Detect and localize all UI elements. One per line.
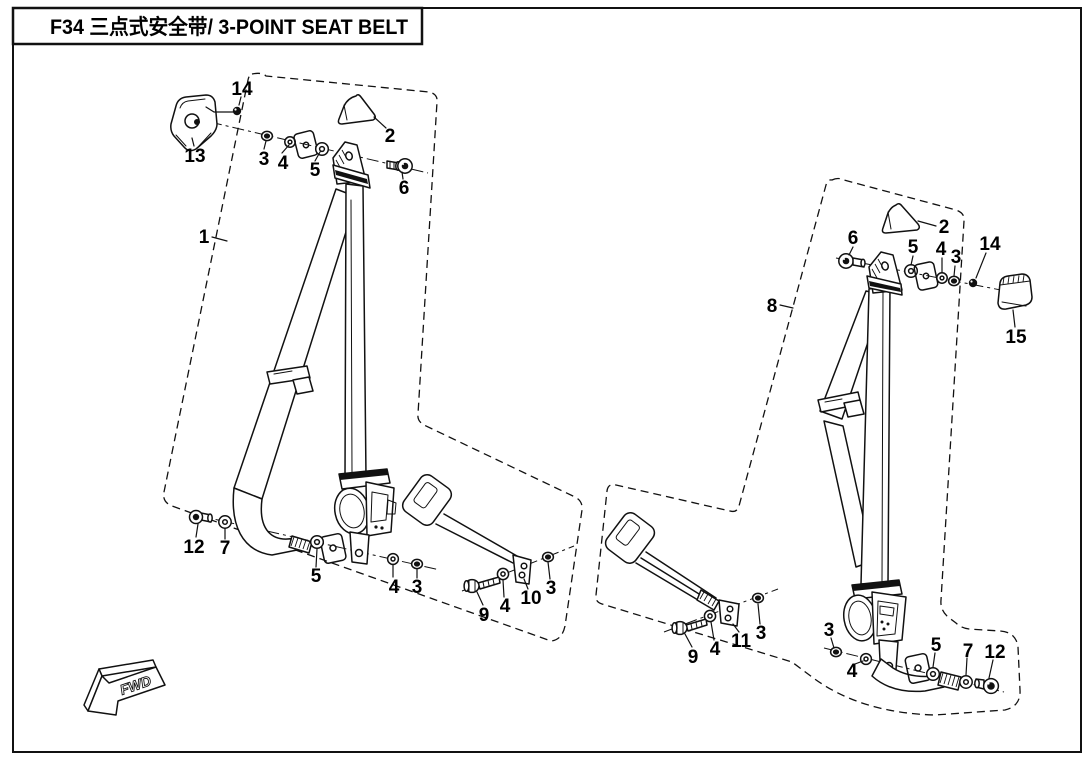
nut-3-right-lower: [831, 647, 842, 656]
callout-5-left-lower: 5: [311, 566, 322, 587]
washer-5-left-top: [316, 143, 329, 156]
callout-14-left: 14: [231, 79, 253, 100]
callout-6-right: 6: [848, 228, 859, 249]
callout-5-right-lower: 5: [931, 635, 942, 656]
callout-14-right: 14: [979, 234, 1001, 255]
callout-4-right-top: 4: [936, 239, 947, 260]
buckle-11-right: [602, 510, 739, 626]
callout-7-left: 7: [220, 538, 231, 559]
callout-5-left-top: 5: [310, 160, 321, 181]
nut-3-left-top: [262, 131, 273, 140]
ball-stud-14-right: [969, 279, 977, 287]
page-title: F34 三点式安全带/ 3-POINT SEAT BELT: [50, 15, 408, 39]
callout-12-right: 12: [984, 642, 1005, 663]
callout-3-left-buckle: 3: [546, 578, 557, 599]
callout-3-left-top: 3: [259, 149, 270, 170]
callout-3-right-lower: 3: [824, 620, 835, 641]
callout-1: 1: [199, 227, 210, 248]
washer-4-right-buckle: [704, 610, 715, 621]
callout-4-right-lower: 4: [847, 661, 858, 682]
callout-10: 10: [520, 588, 541, 609]
callout-4-left-top: 4: [278, 153, 289, 174]
left-seat-belt-assembly: [171, 95, 554, 593]
title-block: F34 三点式安全带/ 3-POINT SEAT BELT: [13, 8, 422, 44]
right-seat-belt-assembly: [602, 204, 1032, 694]
washer-5-left-lower: [311, 536, 324, 549]
callout-8: 8: [767, 296, 778, 317]
bolt-9-right: [672, 619, 707, 634]
washer-4-right-top: [937, 273, 947, 283]
callout-6-left: 6: [399, 178, 410, 199]
left-retractor: [331, 469, 396, 564]
nut-3-left-lower: [412, 559, 423, 568]
cover-13: [171, 95, 217, 151]
callout-2-right: 2: [939, 217, 950, 238]
nut-3-left-buckle: [543, 552, 554, 561]
bolt-12-left: [190, 511, 213, 524]
callout-11: 11: [731, 631, 752, 652]
left-vertical-strap: [345, 184, 366, 477]
callout-15: 15: [1005, 327, 1027, 348]
bolt-9-left: [464, 577, 500, 592]
right-upper-anchor-bracket: [867, 252, 902, 295]
washer-4-left-lower: [388, 554, 399, 565]
bolt-6-left: [387, 159, 412, 173]
callout-13: 13: [184, 146, 205, 167]
callout-9-right: 9: [688, 647, 699, 668]
anchor-plate-right-top: [914, 261, 939, 291]
cover-15: [998, 274, 1032, 309]
washer-7-right: [960, 676, 972, 688]
parts-diagram-page: F34 三点式安全带/ 3-POINT SEAT BELT: [0, 0, 1090, 760]
left-upper-anchor-bracket: [333, 142, 370, 188]
callout-7-right: 7: [963, 641, 974, 662]
bolt-12-right: [975, 679, 999, 694]
callout-2-left: 2: [385, 126, 396, 147]
washer-5-right-lower: [927, 668, 940, 681]
callout-9-left: 9: [479, 605, 490, 626]
fwd-direction-arrow: FWD: [84, 660, 165, 715]
washer-7-left: [219, 516, 231, 528]
left-lap-strap-curve: [233, 488, 297, 555]
callout-3-right-top: 3: [951, 247, 962, 268]
washer-4-right-lower: [861, 654, 872, 665]
callout-5-right-top: 5: [908, 237, 919, 258]
nut-3-right-buckle: [753, 593, 764, 602]
seat-belt-diagram: F34 三点式安全带/ 3-POINT SEAT BELT: [0, 0, 1090, 760]
callout-4-left-lower: 4: [389, 577, 400, 598]
bolt-6-right: [839, 254, 865, 268]
nut-3-right-top: [949, 276, 960, 285]
left-shoulder-strap: [234, 189, 357, 499]
callout-4-left-buckle: 4: [500, 596, 511, 617]
callout-3-right-buckle: 3: [756, 623, 767, 644]
callout-4-right-buckle: 4: [710, 639, 721, 660]
washer-4-left-buckle: [497, 568, 508, 579]
cover-2-right: [882, 204, 919, 233]
cover-2-left: [338, 95, 375, 124]
callout-3-left-lower: 3: [412, 577, 423, 598]
callout-12-left: 12: [183, 537, 204, 558]
